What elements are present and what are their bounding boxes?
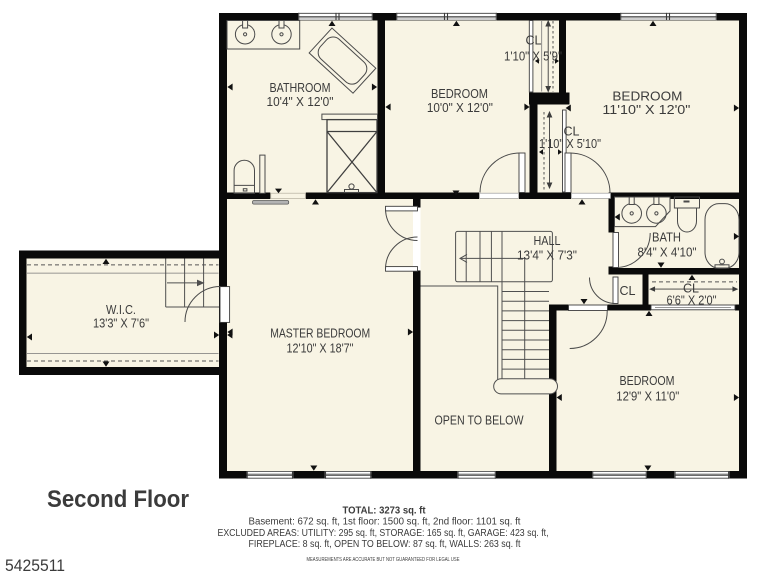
svg-text:FIREPLACE: 8 sq. ft, OPEN TO B: FIREPLACE: 8 sq. ft, OPEN TO BELOW: 87 s… (249, 539, 521, 550)
svg-text:13'3" X 7'6": 13'3" X 7'6" (93, 317, 149, 331)
svg-text:OPEN TO BELOW: OPEN TO BELOW (435, 413, 525, 428)
svg-text:5425511: 5425511 (5, 556, 65, 575)
svg-text:10'0" X 12'0": 10'0" X 12'0" (427, 101, 493, 115)
svg-text:1'10" X 5'9": 1'10" X 5'9" (504, 50, 562, 64)
svg-text:BEDROOM: BEDROOM (431, 86, 488, 101)
svg-text:Basement: 672 sq. ft, 1st floo: Basement: 672 sq. ft, 1st floor: 1500 sq… (249, 517, 521, 528)
svg-text:BEDROOM: BEDROOM (620, 373, 675, 388)
svg-text:8'4" X 4'10": 8'4" X 4'10" (638, 246, 697, 260)
svg-text:CL: CL (526, 34, 542, 48)
svg-text:10'4" X 12'0": 10'4" X 12'0" (267, 95, 334, 109)
svg-text:6'6" X 2'0": 6'6" X 2'0" (667, 294, 717, 308)
svg-text:HALL: HALL (534, 233, 561, 248)
svg-text:MASTER BEDROOM: MASTER BEDROOM (270, 326, 370, 341)
svg-text:TOTAL: 3273 sq. ft: TOTAL: 3273 sq. ft (343, 506, 427, 517)
svg-text:W.I.C.: W.I.C. (106, 302, 136, 317)
svg-text:12'10" X 18'7": 12'10" X 18'7" (287, 342, 354, 356)
svg-text:MEASUREMENTS ARE ACCURATE BUT: MEASUREMENTS ARE ACCURATE BUT NOT GUARAN… (307, 557, 460, 563)
svg-text:12'9" X 11'0": 12'9" X 11'0" (616, 390, 679, 404)
svg-text:EXCLUDED AREAS: UTILITY: 295 s: EXCLUDED AREAS: UTILITY: 295 sq. ft, STO… (218, 528, 549, 539)
svg-text:11'10" X 12'0": 11'10" X 12'0" (602, 103, 690, 117)
svg-text:Second Floor: Second Floor (47, 486, 189, 513)
svg-text:1'10" X 5'10": 1'10" X 5'10" (539, 137, 601, 151)
svg-text:BATHROOM: BATHROOM (270, 80, 331, 95)
svg-text:13'4" X 7'3": 13'4" X 7'3" (517, 249, 577, 263)
svg-text:BEDROOM: BEDROOM (612, 89, 682, 104)
svg-text:BATH: BATH (652, 230, 681, 245)
svg-text:CL: CL (620, 284, 636, 298)
